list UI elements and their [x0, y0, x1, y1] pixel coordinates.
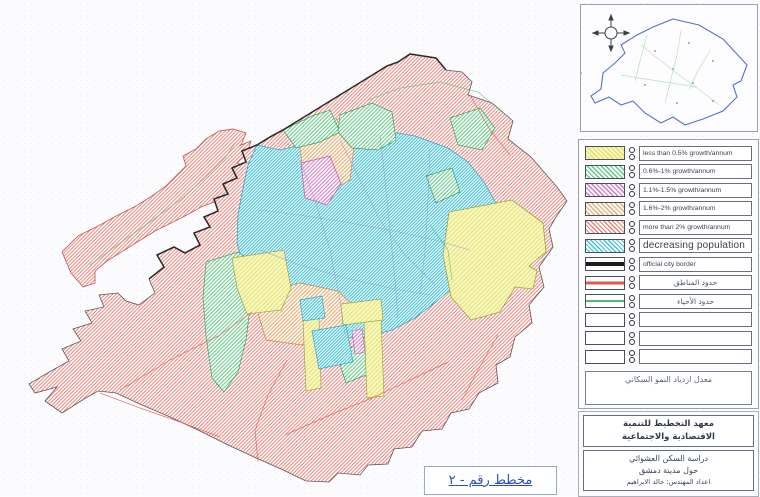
legend-label: less than 0.5% growth/annum [639, 146, 752, 161]
study-box: دراسة السكن العشوائي حول مدينة دمشق اعدا… [583, 450, 754, 491]
legend-swatch-city-border [585, 257, 625, 271]
legend-anchor-dots [629, 221, 635, 234]
legend-anchor-dots [629, 350, 635, 363]
region-south-decreasing-2 [300, 296, 325, 321]
legend-label: decreasing population [639, 238, 752, 253]
legend-label: official city border [639, 257, 752, 272]
credits-panel: معهد التخطيط للتنمية الاقتصادية والاجتما… [578, 411, 759, 497]
institute-line1: معهد التخطيط للتنمية [584, 418, 753, 431]
legend-label: 1.1%-1.5% growth/annum [639, 183, 752, 198]
legend-row-empty [585, 330, 752, 346]
legend-row: official city border [585, 256, 752, 272]
legend-panel: less than 0.5% growth/annum 0.6%-1% grow… [578, 139, 759, 409]
legend-anchor-dots [629, 332, 635, 345]
legend-swatch-district-borders [585, 276, 625, 290]
legend-swatch-1.1-1.5pct [585, 183, 625, 197]
region-strip2-less-0.5pct [364, 319, 384, 398]
legend-anchor-dots [629, 239, 635, 252]
legend-label: more than 2% growth/annum [639, 220, 752, 235]
legend-label-empty [639, 331, 752, 346]
legend-label: حدود المناطق [639, 275, 752, 290]
region-strip3-less-0.5pct [341, 299, 383, 325]
legend-label: 0.6%-1% growth/annum [639, 164, 752, 179]
legend-anchor-dots [629, 258, 635, 271]
inset-number-marks [581, 42, 714, 104]
legend-caption: معدل ازدياد النمو السكاني [585, 371, 752, 405]
legend-row: 0.6%-1% growth/annum [585, 164, 752, 180]
legend-swatch-1.6-2pct [585, 202, 625, 216]
legend-anchor-dots [629, 147, 635, 160]
legend-anchor-dots [629, 276, 635, 289]
legend-anchor-dots [629, 165, 635, 178]
overview-inset-map [581, 5, 757, 131]
compass-rose-icon [593, 15, 629, 51]
legend-anchor-dots [629, 313, 635, 326]
legend-label-empty [639, 312, 752, 327]
legend-swatch-0.6-1pct [585, 165, 625, 179]
institute-line2: الاقتصادية والاجتماعية [584, 431, 753, 444]
legend-row: حدود المناطق [585, 275, 752, 291]
legend-label: حدود الأحياء [639, 294, 752, 309]
legend-row: more than 2% growth/annum [585, 219, 752, 235]
legend-swatch-empty [585, 313, 625, 327]
legend-row: حدود الأحياء [585, 293, 752, 309]
study-subtitle: حول مدينة دمشق [584, 465, 753, 477]
legend-row: 1.6%-2% growth/annum [585, 201, 752, 217]
legend-row-empty [585, 349, 752, 365]
legend-swatch-less-0.5pct [585, 146, 625, 160]
legend-label: 1.6%-2% growth/annum [639, 201, 752, 216]
legend-row-empty [585, 312, 752, 328]
study-title: دراسة السكن العشوائي [584, 453, 753, 465]
institute-box: معهد التخطيط للتنمية الاقتصادية والاجتما… [583, 415, 754, 447]
legend-anchor-dots [629, 184, 635, 197]
region-south-decreasing [312, 325, 353, 369]
legend-label-empty [639, 349, 752, 364]
legend-swatch-neighborhood-borders [585, 294, 625, 308]
legend-anchor-dots [629, 202, 635, 215]
legend-row: decreasing population [585, 238, 752, 254]
legend-swatch-more-2pct [585, 220, 625, 234]
legend-row: 1.1%-1.5% growth/annum [585, 182, 752, 198]
legend-swatch-empty [585, 331, 625, 345]
plan-number-box: مخطط رقم - ٢ [424, 466, 557, 495]
legend-swatch-empty [585, 350, 625, 364]
study-author: اعداد المهندس: خالد الابراهيم [584, 477, 753, 488]
overview-inset-box [580, 4, 758, 132]
legend-row: less than 0.5% growth/annum [585, 145, 752, 161]
inset-district-lines [621, 31, 719, 105]
legend-swatch-decreasing [585, 239, 625, 253]
scanned-map-page: less than 0.5% growth/annum 0.6%-1% grow… [0, 0, 760, 497]
plan-number-label: مخطط رقم - ٢ [449, 473, 533, 488]
legend-anchor-dots [629, 295, 635, 308]
inset-city-outline [591, 19, 747, 125]
